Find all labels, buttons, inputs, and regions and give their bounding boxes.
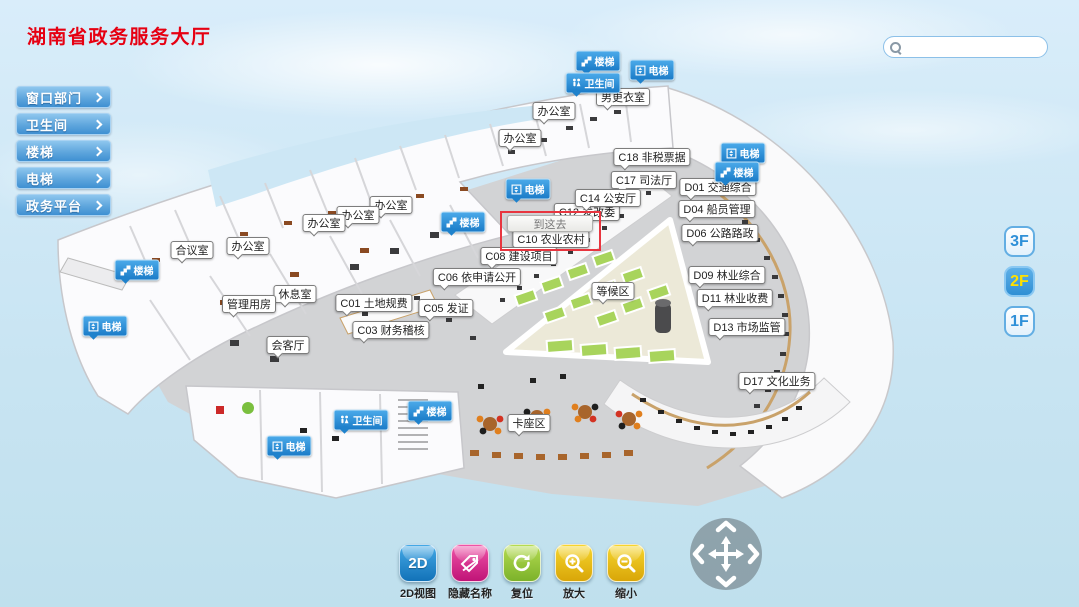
room-label[interactable]: 办公室 <box>499 129 542 147</box>
chevron-right-icon <box>93 174 103 184</box>
zoom-out-icon <box>607 544 645 582</box>
badge-label: 楼梯 <box>427 404 447 419</box>
2d-view-icon: 2D <box>399 544 437 582</box>
tool-label: 2D视图 <box>400 585 436 601</box>
tool-label: 缩小 <box>615 585 637 601</box>
room-label[interactable]: D13 市场监管 <box>708 318 785 336</box>
badge-label: 电梯 <box>286 439 306 454</box>
floor-button-3f[interactable]: 3F <box>1004 226 1035 257</box>
floor-switcher: 3F2F1F <box>1004 226 1035 337</box>
stairs-badge[interactable]: 楼梯 <box>115 260 160 281</box>
room-label[interactable]: C08 建设项目 <box>480 247 557 265</box>
sidebar-item-label: 楼梯 <box>26 142 54 161</box>
reset-icon <box>503 544 541 582</box>
elevator-badge[interactable]: 电梯 <box>83 316 128 337</box>
room-label[interactable]: 会客厅 <box>267 336 310 354</box>
sidebar-item-window-departments[interactable]: 窗口部门 <box>16 86 111 108</box>
badge-label: 卫生间 <box>353 413 383 428</box>
room-label[interactable]: 休息室 <box>274 285 317 303</box>
sidebar-item-label: 卫生间 <box>26 115 68 134</box>
badge-label: 电梯 <box>525 182 545 197</box>
page-title: 湖南省政务服务大厅 <box>27 22 212 49</box>
room-label[interactable]: D11 林业收费 <box>697 289 773 307</box>
elevator-icon <box>636 65 646 75</box>
badge-label: 电梯 <box>102 319 122 334</box>
goto-here-popup[interactable]: 到这去 <box>507 215 593 232</box>
room-label[interactable]: 合议室 <box>171 241 214 259</box>
2d-view-button[interactable]: 2D2D视图 <box>398 544 438 601</box>
search-icon <box>890 42 901 53</box>
badge-label: 楼梯 <box>734 165 754 180</box>
room-label[interactable]: 办公室 <box>227 237 270 255</box>
sidebar-item-restroom[interactable]: 卫生间 <box>16 113 111 135</box>
elevator-badge[interactable]: 电梯 <box>630 60 675 81</box>
elevator-badge[interactable]: 电梯 <box>267 436 312 457</box>
sidebar-item-gov-platform[interactable]: 政务平台 <box>16 194 111 216</box>
elevator-icon <box>273 441 283 451</box>
sidebar: 窗口部门卫生间楼梯电梯政务平台 <box>16 86 111 216</box>
stairs-icon <box>121 265 131 275</box>
room-label[interactable]: D04 船员管理 <box>678 200 755 218</box>
room-label[interactable]: D09 林业综合 <box>688 266 765 284</box>
toolbar: 2D2D视图隐藏名称复位放大缩小 <box>398 544 646 601</box>
floor-button-1f[interactable]: 1F <box>1004 306 1035 337</box>
room-label[interactable]: C06 依申请公开 <box>433 268 521 286</box>
elevator-badge[interactable]: 电梯 <box>721 143 766 164</box>
elevator-icon <box>727 148 737 158</box>
tool-label: 放大 <box>563 585 585 601</box>
badge-label: 卫生间 <box>585 76 615 91</box>
stairs-icon <box>447 217 457 227</box>
room-label[interactable]: C18 非税票据 <box>613 148 690 166</box>
elevator-badge[interactable]: 电梯 <box>506 179 551 200</box>
toilet-icon <box>340 415 350 425</box>
room-label[interactable]: 办公室 <box>533 102 576 120</box>
sidebar-item-label: 窗口部门 <box>26 88 82 107</box>
room-label[interactable]: 等候区 <box>592 282 635 300</box>
elevator-icon <box>89 321 99 331</box>
stairs-icon <box>414 406 424 416</box>
zoom-out-button[interactable]: 缩小 <box>606 544 646 601</box>
room-label[interactable]: D17 文化业务 <box>738 372 815 390</box>
tool-label: 隐藏名称 <box>448 585 492 601</box>
chevron-right-icon <box>93 93 103 103</box>
badge-label: 电梯 <box>649 63 669 78</box>
room-label[interactable]: 卡座区 <box>508 414 551 432</box>
elevator-icon <box>512 184 522 194</box>
hide-names-icon <box>451 544 489 582</box>
map-label-layer: 到这去 楼梯电梯卫生间电梯楼梯电梯楼梯楼梯电梯楼梯卫生间电梯男更衣室办公室办公室… <box>0 0 1079 607</box>
sidebar-item-elevator[interactable]: 电梯 <box>16 167 111 189</box>
room-label[interactable]: 管理用房 <box>222 295 276 313</box>
toilet-badge[interactable]: 卫生间 <box>566 73 621 94</box>
toilet-icon <box>572 78 582 88</box>
floor-button-2f[interactable]: 2F <box>1004 266 1035 297</box>
chevron-right-icon <box>93 147 103 157</box>
stairs-icon <box>582 56 592 66</box>
sidebar-item-label: 政务平台 <box>26 196 82 215</box>
stairs-badge[interactable]: 楼梯 <box>441 212 486 233</box>
chevron-right-icon <box>93 120 103 130</box>
sidebar-item-stairs[interactable]: 楼梯 <box>16 140 111 162</box>
sidebar-item-label: 电梯 <box>26 169 54 188</box>
room-label[interactable]: C01 土地规费 <box>335 294 412 312</box>
room-label[interactable]: C05 发证 <box>418 299 473 317</box>
toilet-badge[interactable]: 卫生间 <box>334 410 389 431</box>
pan-compass[interactable] <box>688 516 764 592</box>
hide-names-button[interactable]: 隐藏名称 <box>450 544 490 601</box>
stairs-icon <box>721 167 731 177</box>
chevron-right-icon <box>93 201 103 211</box>
zoom-in-button[interactable]: 放大 <box>554 544 594 601</box>
search-input[interactable] <box>905 39 1064 55</box>
reset-button[interactable]: 复位 <box>502 544 542 601</box>
stairs-badge[interactable]: 楼梯 <box>715 162 760 183</box>
badge-label: 楼梯 <box>595 54 615 69</box>
room-label[interactable]: 办公室 <box>303 214 346 232</box>
room-label[interactable]: C14 公安厅 <box>575 189 641 207</box>
badge-label: 楼梯 <box>460 215 480 230</box>
search-box[interactable] <box>883 36 1048 58</box>
room-label[interactable]: C03 财务稽核 <box>352 321 429 339</box>
badge-label: 楼梯 <box>134 263 154 278</box>
tool-label: 复位 <box>511 585 533 601</box>
badge-label: 电梯 <box>740 146 760 161</box>
stairs-badge[interactable]: 楼梯 <box>576 51 621 72</box>
zoom-in-icon <box>555 544 593 582</box>
room-label[interactable]: C10 农业农村 <box>512 230 589 248</box>
stairs-badge[interactable]: 楼梯 <box>408 401 453 422</box>
app-window: 到这去 楼梯电梯卫生间电梯楼梯电梯楼梯楼梯电梯楼梯卫生间电梯男更衣室办公室办公室… <box>0 0 1079 607</box>
room-label[interactable]: D06 公路路政 <box>681 224 758 242</box>
room-label[interactable]: C17 司法厅 <box>611 171 677 189</box>
